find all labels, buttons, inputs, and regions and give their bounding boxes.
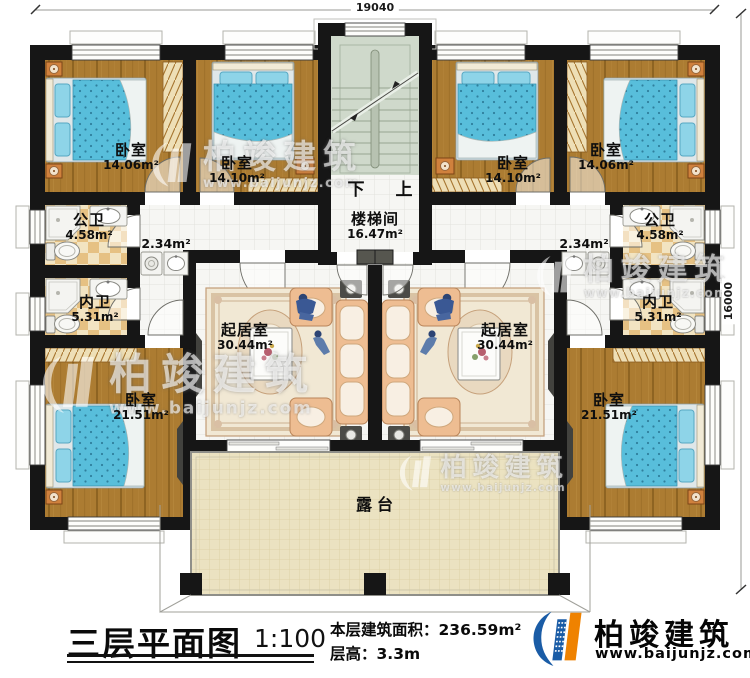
room-label-bath-inner-left: 内卫5.31m² xyxy=(71,294,118,324)
title-block: 三层平面图 1:100 本层建筑面积：236.59m² 层高：3.3m xyxy=(0,600,750,678)
floor-height-text: 层高：3.3m xyxy=(330,642,420,664)
floor-plan-drawing xyxy=(0,0,750,678)
room-label-bath-public-right: 公卫4.58m² xyxy=(636,212,683,242)
room-label-bedroom-bottom-left: 卧室21.51m² xyxy=(113,392,169,422)
floor-area-text: 本层建筑面积：236.59m² xyxy=(330,618,521,640)
stairs-up-label: 上 xyxy=(396,175,413,200)
room-label-bath-public-left: 公卫4.58m² xyxy=(65,212,112,242)
title-underline xyxy=(67,661,314,663)
dimension-width: 19040 xyxy=(351,1,399,14)
stairwell-block xyxy=(314,19,436,295)
room-label-living-right: 起居室30.44m² xyxy=(477,322,533,352)
terrace xyxy=(180,452,570,595)
tv-living-left xyxy=(196,333,202,397)
room-label-bedroom-top-far-left: 卧室14.06m² xyxy=(103,142,159,172)
closet-area-right: 2.34m² xyxy=(559,236,608,251)
room-label-bath-inner-right: 内卫5.31m² xyxy=(634,294,681,324)
drawing-title: 三层平面图 xyxy=(67,617,242,665)
brand-website: www.baijunjz.com xyxy=(595,646,750,662)
stairs-down-label: 下 xyxy=(348,175,365,200)
tv-bedroom-bottom-left xyxy=(177,421,183,485)
room-label-stairwell: 楼梯间16.47m² xyxy=(347,211,403,241)
closet-area-left: 2.34m² xyxy=(141,236,190,251)
dimension-height: 16000 xyxy=(722,278,735,324)
room-label-bedroom-top-mid-left: 卧室14.10m² xyxy=(209,155,265,185)
room-label-bedroom-top-far-right: 卧室14.06m² xyxy=(578,142,634,172)
room-label-bedroom-bottom-right: 卧室21.51m² xyxy=(581,392,637,422)
title-underline xyxy=(67,654,314,657)
drawing-scale: 1:100 xyxy=(254,624,326,653)
brand-logo-icon xyxy=(531,606,587,668)
floor-plan-page: 柏竣建筑 www.baijunjz.com 柏竣建筑 www.baijunjz.… xyxy=(0,0,750,678)
room-label-bedroom-top-mid-right: 卧室14.10m² xyxy=(485,155,541,185)
laundry-nook-left xyxy=(141,252,188,275)
living-left-furniture xyxy=(206,280,368,444)
terrace-label: 露台 xyxy=(356,491,398,515)
room-label-living-left: 起居室30.44m² xyxy=(217,322,273,352)
